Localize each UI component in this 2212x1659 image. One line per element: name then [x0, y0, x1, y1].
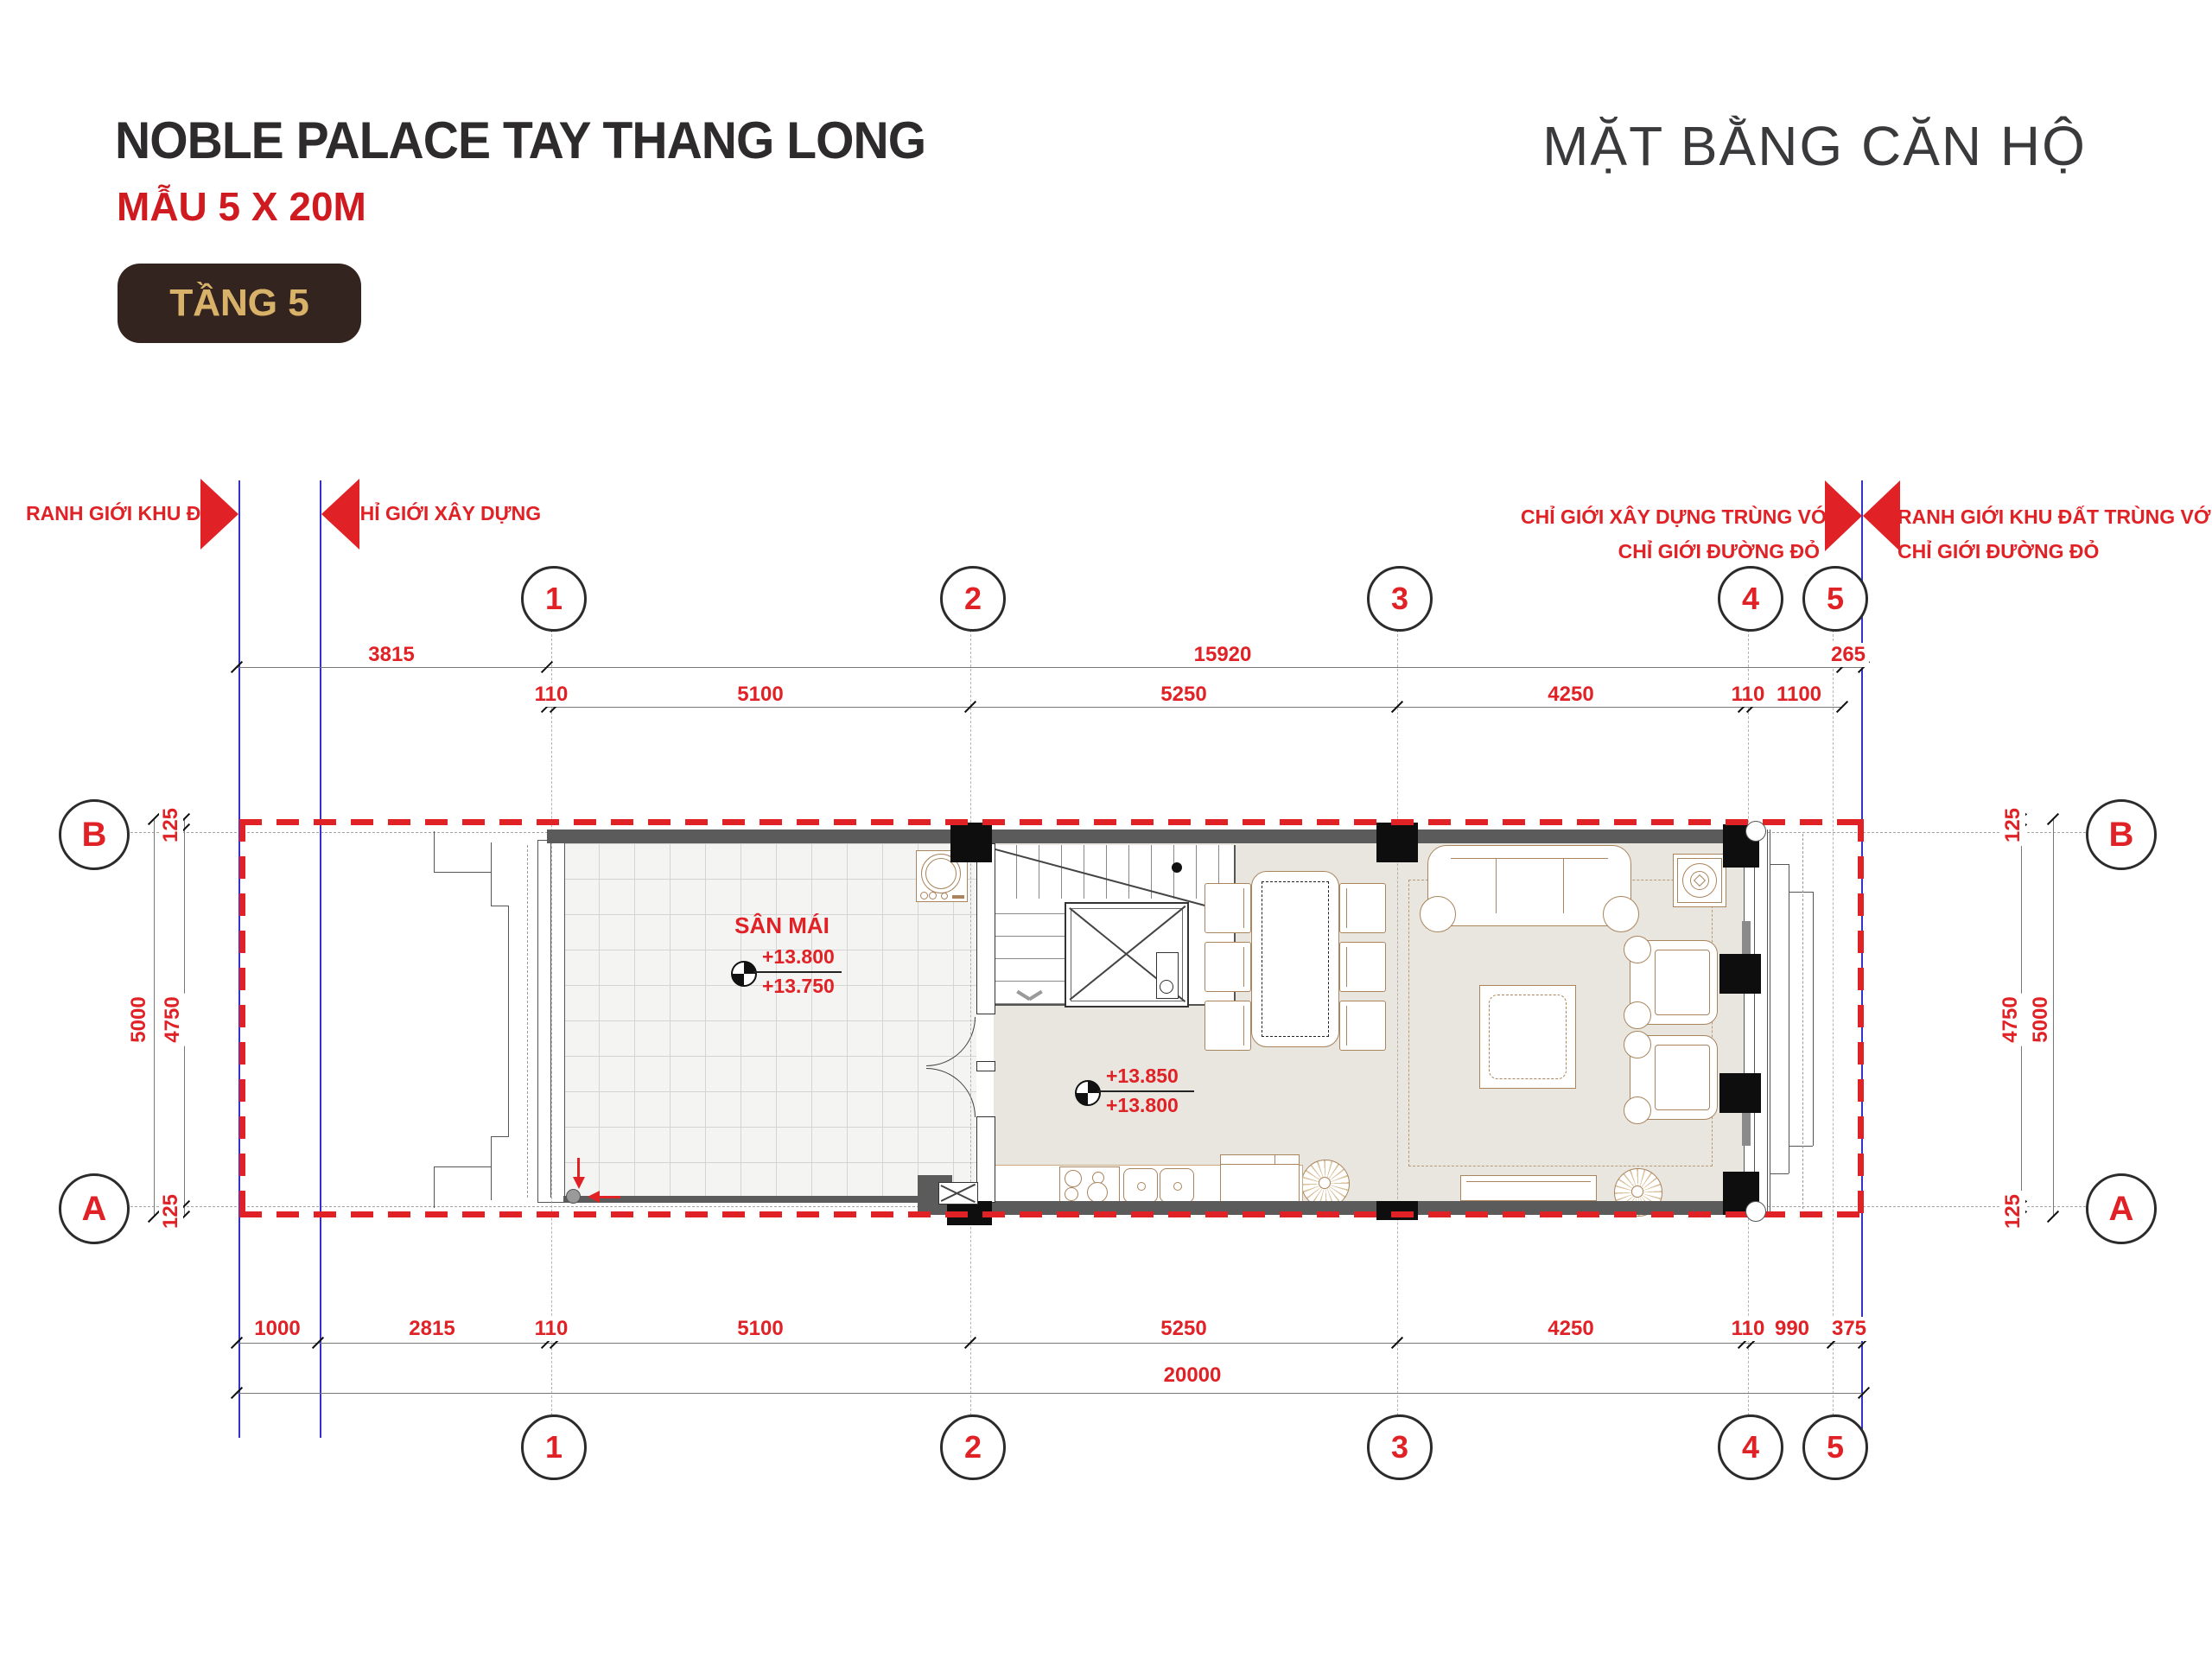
- washer-drum-inner: [925, 858, 957, 889]
- bay-line: [1789, 892, 1813, 893]
- stair-flight-left: [994, 900, 1065, 1004]
- grid-line-1: [551, 626, 552, 1415]
- red-boundary-top: [239, 819, 1864, 825]
- dining-table: [1251, 871, 1339, 1047]
- sofa: [1427, 845, 1631, 926]
- label-build-limit-coincide: CHỈ GIỚI XÂY DỰNG TRÙNG VỚI CHỈ GIỚI ĐƯỜ…: [1521, 499, 1820, 569]
- dim-label: 4250: [1544, 1317, 1597, 1341]
- level-value: +13.850: [1106, 1065, 1179, 1088]
- project-title: NOBLE PALACE TAY THANG LONG: [115, 111, 925, 170]
- grid-label: 5: [1827, 1429, 1844, 1465]
- coffee-table: [1479, 985, 1576, 1089]
- window-frame-line: [1754, 829, 1755, 1215]
- grid-label: 2: [964, 581, 982, 617]
- grid-line-2: [970, 626, 971, 1415]
- grid-label: 3: [1391, 581, 1408, 617]
- stove-burner: [1065, 1187, 1078, 1201]
- dim-line: [237, 1343, 1864, 1344]
- level-leader-line: [1097, 1090, 1194, 1092]
- refrigerator-line: [1221, 1164, 1299, 1165]
- grid-bubble-B-left: B: [59, 799, 130, 870]
- grid-label: 2: [964, 1429, 982, 1465]
- grid-label: 1: [545, 581, 563, 617]
- red-boundary-right: [1858, 819, 1864, 1217]
- dining-chair: [1339, 942, 1386, 992]
- level-marker-icon: [1075, 1080, 1101, 1106]
- dim-label: 125: [159, 1191, 183, 1232]
- armchair-arm: [1624, 1001, 1651, 1029]
- window-jamb: [1742, 921, 1751, 954]
- grid-bubble-B-right: B: [2086, 799, 2157, 870]
- facade-line: [491, 906, 508, 906]
- dining-chair: [1205, 1001, 1251, 1051]
- washer-knob: [929, 892, 937, 899]
- facade-line: [491, 1136, 492, 1200]
- dim-label: 265: [1827, 643, 1869, 667]
- divider-wall: [976, 843, 995, 1014]
- grid-line-5: [1833, 626, 1834, 1415]
- dim-label: 1000: [251, 1317, 303, 1341]
- window-jamb: [1742, 1113, 1751, 1146]
- washer-knob: [941, 893, 948, 899]
- wall-end-symbol: [1745, 1201, 1766, 1222]
- boundary-marker-icon: [1863, 480, 1900, 551]
- dim-label: 15920: [1191, 643, 1255, 667]
- drain-arrow-down: [577, 1158, 580, 1177]
- grid-label: A: [2109, 1190, 2134, 1229]
- sofa-arm: [1603, 896, 1639, 932]
- grid-bubble-1-top: 1: [521, 566, 587, 632]
- right-window-wall: [1744, 829, 1768, 1215]
- tv-console-line: [1466, 1181, 1591, 1182]
- bay-dashed-line: [1802, 834, 1803, 1209]
- refrigerator-line: [1274, 1155, 1275, 1164]
- dining-chair: [1339, 1001, 1386, 1051]
- stair-flight-upper: [994, 845, 1234, 899]
- floor-plan-sheet: NOBLE PALACE TAY THANG LONG MẪU 5 X 20M …: [0, 0, 2212, 1659]
- dining-table-top: [1262, 881, 1329, 1037]
- facade-line: [491, 842, 492, 906]
- sofa-seat-divider: [1563, 858, 1564, 913]
- dim-label: 125: [2001, 1191, 2025, 1232]
- dim-label-total: 20000: [1160, 1363, 1225, 1388]
- stove-burner: [1087, 1182, 1108, 1203]
- dim-label: 110: [531, 1317, 572, 1341]
- door-stop-dot: [1172, 862, 1182, 873]
- grid-bubble-1-bottom: 1: [521, 1414, 587, 1480]
- label-lot-boundary-coincide: RANH GIỚI KHU ĐẤT TRÙNG VỚI CHỈ GIỚI ĐƯỜ…: [1897, 499, 2209, 569]
- dim-label: 2815: [405, 1317, 458, 1341]
- grid-bubble-5-top: 5: [1802, 566, 1868, 632]
- grid-label: 4: [1742, 1429, 1759, 1465]
- level-value: +13.750: [762, 975, 835, 998]
- label-lot-boundary: RANH GIỚI KHU ĐẤT: [26, 496, 195, 531]
- dim-label: 3815: [365, 643, 417, 667]
- dining-chair: [1205, 942, 1251, 992]
- bay-line: [1770, 1173, 1789, 1174]
- refrigerator: [1220, 1154, 1300, 1205]
- drain-arrow-left: [600, 1196, 620, 1198]
- drain-arrow-left-head: [588, 1191, 600, 1203]
- armchair-arm: [1624, 936, 1651, 963]
- floor-drain: [566, 1189, 581, 1204]
- floor-badge: TẦNG 5: [118, 264, 361, 343]
- dim-label: 4750: [1999, 993, 2023, 1046]
- dim-label: 110: [531, 683, 572, 707]
- sink-drain: [1137, 1182, 1146, 1191]
- dim-line: [547, 707, 1842, 708]
- grid-label: 4: [1742, 581, 1759, 617]
- sofa-arm: [1420, 896, 1456, 932]
- grid-label: 3: [1391, 1429, 1408, 1465]
- level-marker-icon: [731, 961, 757, 987]
- bay-line: [1789, 864, 1789, 1173]
- grid-bubble-A-left: A: [59, 1173, 130, 1244]
- facade-dashed-line: [527, 845, 528, 1198]
- grid-bubble-4-bottom: 4: [1718, 1414, 1783, 1480]
- bay-line: [1770, 829, 1770, 1211]
- column: [1719, 1073, 1761, 1113]
- red-boundary-left: [239, 819, 245, 1217]
- grid-bubble-2-top: 2: [940, 566, 1006, 632]
- dim-label: 1100: [1773, 683, 1825, 707]
- dining-chair: [1205, 883, 1251, 933]
- bay-line: [1770, 864, 1789, 865]
- facade-line: [508, 906, 509, 1137]
- grid-bubble-2-bottom: 2: [940, 1414, 1006, 1480]
- lot-size-subtitle: MẪU 5 X 20M: [117, 183, 366, 230]
- washer-knob: [920, 892, 928, 899]
- dim-label: 990: [1771, 1317, 1813, 1341]
- facade-line: [434, 831, 435, 873]
- dim-line: [2053, 819, 2054, 1217]
- wall-end-symbol: [1745, 821, 1766, 842]
- armchair: [1630, 1035, 1718, 1120]
- stove-burner: [1065, 1170, 1082, 1187]
- grid-bubble-4-top: 4: [1718, 566, 1783, 632]
- dim-line: [237, 1393, 1864, 1394]
- armchair-arm: [1624, 1096, 1651, 1124]
- divider-wall-post: [976, 1061, 995, 1071]
- dim-label: 125: [159, 804, 183, 846]
- level-leader-line: [753, 971, 842, 973]
- bay-line: [1789, 1146, 1813, 1147]
- build-limit-line: [320, 480, 321, 1438]
- grid-label: 5: [1827, 581, 1844, 617]
- dim-label: 5100: [734, 1317, 786, 1341]
- dim-label: 125: [2001, 804, 2025, 846]
- dim-label: 110: [1728, 683, 1769, 707]
- facade-line: [491, 1136, 508, 1137]
- grid-label: B: [2109, 816, 2134, 855]
- terrace-floor: [563, 843, 976, 1198]
- grid-bubble-5-bottom: 5: [1802, 1414, 1868, 1480]
- level-value: +13.800: [1106, 1094, 1179, 1117]
- planter-box: [1673, 854, 1726, 907]
- dim-line: [154, 819, 155, 1217]
- grid-bubble-3-bottom: 3: [1367, 1414, 1433, 1480]
- label-line: RANH GIỚI KHU ĐẤT TRÙNG VỚI: [1897, 505, 2212, 528]
- label-line: CHỈ GIỚI ĐƯỜNG ĐỎ: [1897, 540, 2099, 563]
- facade-line: [434, 1166, 491, 1167]
- sofa-back-line: [1451, 858, 1608, 859]
- dim-label: 4250: [1544, 683, 1597, 707]
- armchair-arm: [1624, 1031, 1651, 1058]
- dim-line: [237, 667, 1864, 668]
- facade-line: [434, 1166, 435, 1208]
- grid-label: A: [82, 1190, 107, 1229]
- label-line: CHỈ GIỚI XÂY DỰNG TRÙNG VỚI: [1521, 505, 1834, 528]
- dim-label: 5100: [734, 683, 786, 707]
- sheet-title: MẶT BẰNG CĂN HỘ: [1521, 114, 2108, 178]
- sink-drain: [1173, 1182, 1182, 1191]
- armchair-seat: [1655, 1045, 1710, 1110]
- armchair-seat: [1655, 950, 1710, 1015]
- dim-label: 5000: [127, 993, 151, 1046]
- grid-bubble-A-right: A: [2086, 1173, 2157, 1244]
- wall-top: [547, 829, 1758, 843]
- label-build-limit: CHỈ GIỚI XÂY DỰNG: [346, 496, 541, 531]
- grid-label: B: [82, 816, 107, 855]
- facade-line: [434, 872, 491, 873]
- floor-badge-label: TẦNG 5: [169, 282, 308, 325]
- dim-label: 110: [1728, 1317, 1769, 1341]
- sink-basin: [1160, 1168, 1194, 1203]
- drain-arrow-down-head: [573, 1177, 585, 1189]
- dim-label: 4750: [161, 993, 185, 1046]
- column: [1376, 823, 1418, 862]
- red-boundary-bottom: [239, 1211, 1864, 1217]
- elevator-target-icon: [1160, 980, 1173, 994]
- column: [1719, 954, 1761, 994]
- sofa-seat-divider: [1496, 858, 1497, 913]
- room-label-terrace: SÂN MÁI: [696, 912, 868, 939]
- washer-panel: [952, 895, 964, 899]
- grid-bubble-3-top: 3: [1367, 566, 1433, 632]
- tv-console: [1460, 1175, 1597, 1201]
- dim-label: 375: [1828, 1317, 1870, 1341]
- dim-label: 5250: [1157, 683, 1210, 707]
- dim-label: 5250: [1157, 1317, 1210, 1341]
- armchair: [1630, 940, 1718, 1025]
- label-line: CHỈ GIỚI ĐƯỜNG ĐỎ: [1618, 540, 1820, 563]
- dim-label: 5000: [2029, 993, 2053, 1046]
- grid-line-3: [1397, 626, 1398, 1415]
- sink-basin: [1123, 1168, 1158, 1203]
- bay-line: [1813, 892, 1814, 1146]
- dining-chair: [1339, 883, 1386, 933]
- divider-wall: [976, 1116, 995, 1203]
- column: [950, 823, 992, 862]
- coffee-table-top: [1489, 995, 1567, 1079]
- grid-label: 1: [545, 1429, 563, 1465]
- level-value: +13.800: [762, 945, 835, 969]
